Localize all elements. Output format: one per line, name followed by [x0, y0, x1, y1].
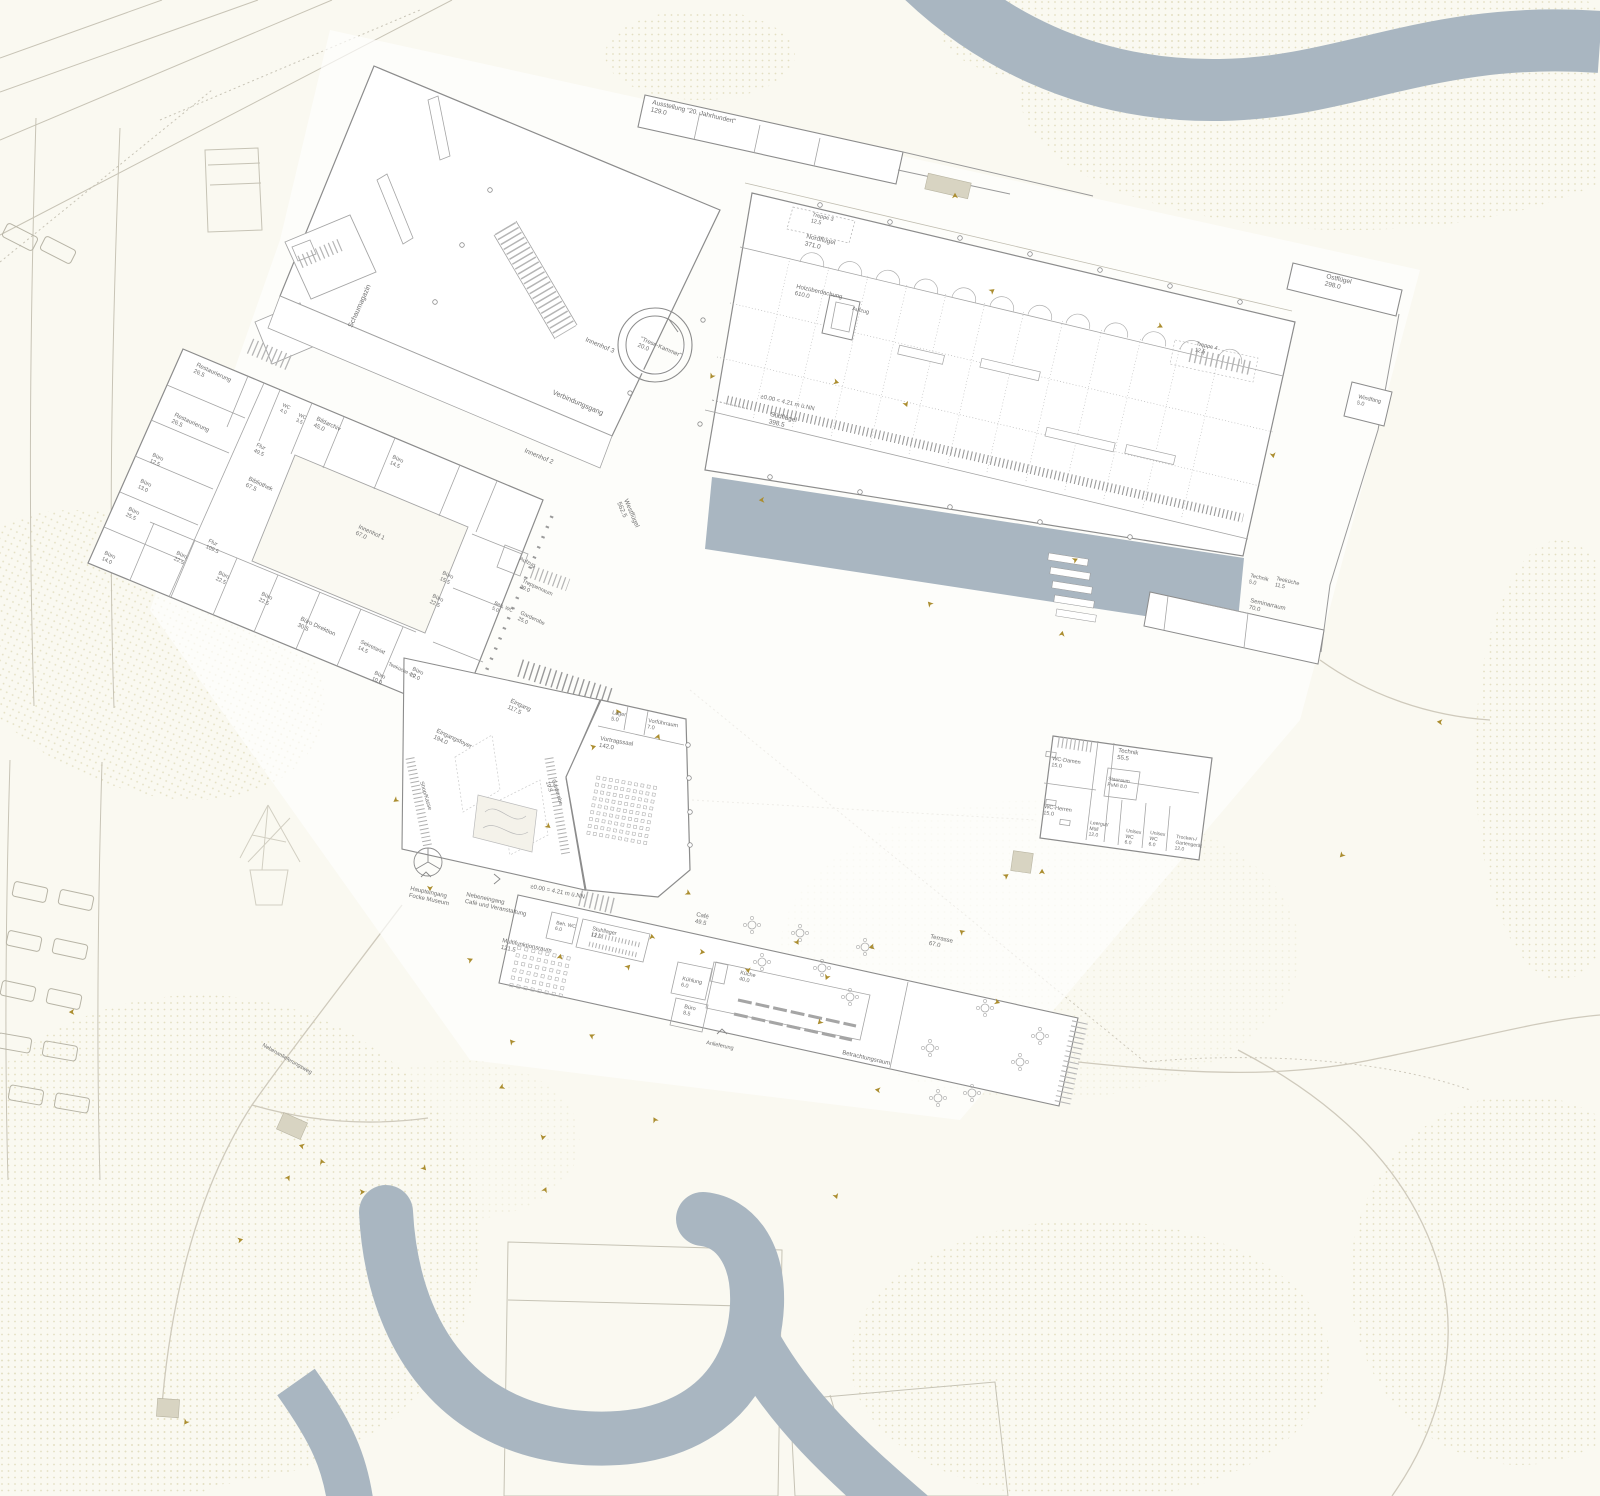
garden-shed	[1011, 851, 1034, 874]
pillar-dot	[888, 220, 893, 225]
pillar-dot	[488, 188, 493, 193]
pillar-dot	[858, 490, 863, 495]
pillar-dot	[958, 236, 963, 241]
pillar-dot	[688, 843, 693, 848]
pillar-dot	[1028, 252, 1033, 257]
pillar-dot	[460, 243, 465, 248]
site-plan-drawing: SchaumagazinInnenhof 3VerbindungsgangInn…	[0, 0, 1600, 1496]
pillar-dot	[1038, 520, 1043, 525]
pillar-dot	[1098, 268, 1103, 273]
pillar-dot	[1238, 300, 1243, 305]
garden-shed	[156, 1398, 179, 1417]
pillar-dot	[1128, 535, 1133, 540]
pillar-dot	[686, 743, 691, 748]
pillar-dot	[948, 505, 953, 510]
pillar-dot	[818, 203, 823, 208]
pillar-dot	[687, 776, 692, 781]
pillar-dot	[768, 475, 773, 480]
pillar-dot	[1168, 284, 1173, 289]
pillar-dot	[433, 300, 438, 305]
site-plan-page: SchaumagazinInnenhof 3VerbindungsgangInn…	[0, 0, 1600, 1496]
pillar-dot	[688, 810, 693, 815]
